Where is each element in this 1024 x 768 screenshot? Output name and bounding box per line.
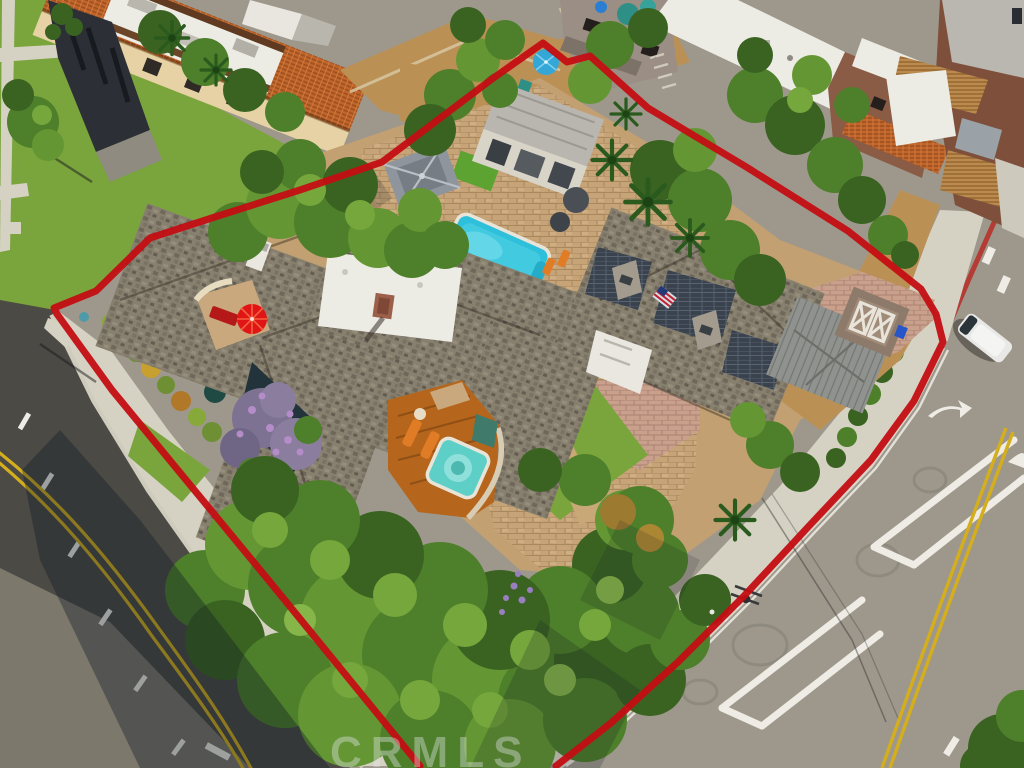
blue-pot <box>79 312 89 322</box>
red-umbrella <box>237 304 267 334</box>
blue-tarp <box>595 1 607 13</box>
watermark: CRMLS <box>330 728 531 768</box>
deck-table <box>414 408 426 420</box>
aerial-scene <box>0 0 1024 768</box>
gray-umbrella <box>563 187 589 213</box>
aerial-photo: CRMLS <box>0 0 1024 768</box>
parked-car <box>1012 8 1022 24</box>
